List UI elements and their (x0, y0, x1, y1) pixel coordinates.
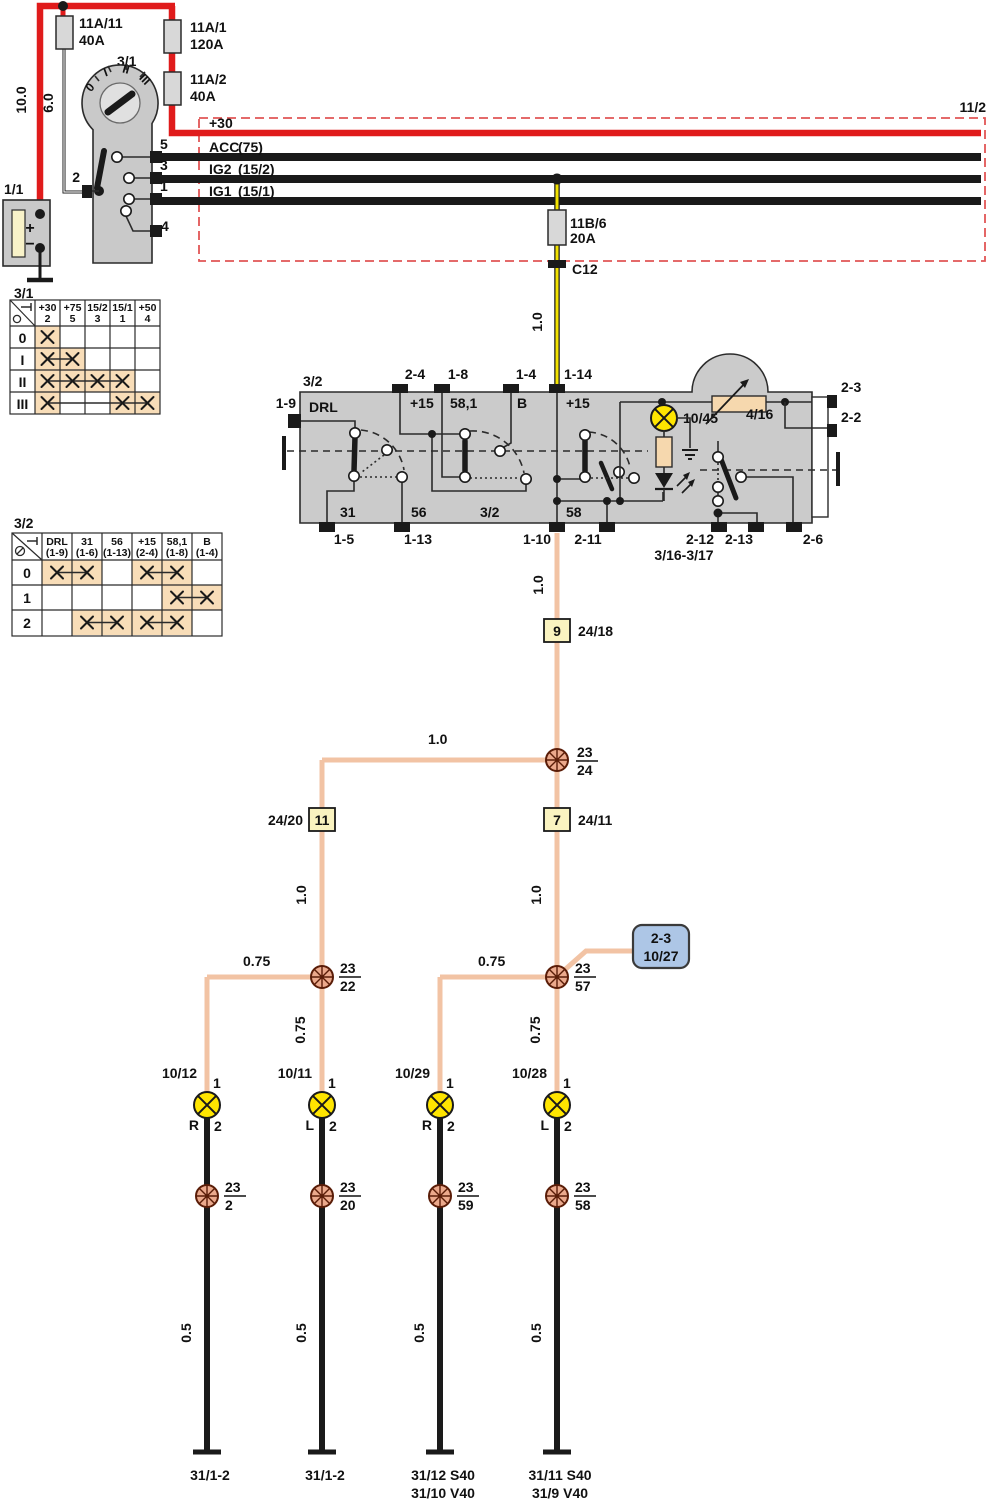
splice-label-bottom: 24 (577, 762, 593, 778)
fuse-name: 11A/2 (190, 71, 227, 87)
table-title: 3/1 (14, 285, 34, 301)
minus-sign: − (25, 236, 34, 253)
lamp-10-11: 10/11 1 L 2 (278, 1065, 337, 1134)
splice-label-top: 23 (458, 1179, 474, 1195)
row-label: I (21, 352, 25, 368)
splice-23-2: 23 2 (196, 1179, 246, 1213)
fuse-11a11: 11A/11 40A (56, 15, 123, 49)
fuse-box-ref: 11/2 (960, 99, 987, 115)
ground-ref: 31/1-2 (305, 1467, 345, 1483)
ground-ref: 31/10 V40 (411, 1485, 475, 1500)
connector-c12 (548, 260, 566, 268)
wire-size-label: 1.0 (528, 885, 544, 905)
splice-23-22: 23 22 (311, 960, 361, 994)
wire-size-label: 1.0 (530, 575, 546, 595)
wire-size-label: 10.0 (13, 86, 29, 113)
terminal-label: 3/2 (480, 504, 500, 520)
col-pin: 2 (45, 313, 51, 325)
pin-4-label: 4 (161, 218, 169, 234)
wiring-diagram-page: 11/2 10.0 6.0 11A/11 40A 11A/1 120A 11A/… (0, 0, 989, 1500)
ground-ref: 31/9 V40 (532, 1485, 588, 1500)
pin-1-10 (549, 522, 565, 532)
ignition-switch-table: 3/1 +30 +75 15/2 15/1 +50 2 5 3 1 4 0 I … (10, 285, 160, 414)
splice-label-top: 23 (575, 1179, 591, 1195)
pin-5-label: 5 (160, 136, 168, 152)
ground-ref: 31/1-2 (190, 1467, 230, 1483)
lamp-feed-wires: 1.0 1.0 1.0 1.0 0.75 0.75 0.75 0.75 9 24… (207, 533, 689, 1092)
splice-label-bottom: 59 (458, 1197, 474, 1213)
pin-label: 1-4 (516, 366, 536, 382)
ignition-switch: 3/1 0 I II III 2 5 3 1 4 (72, 53, 169, 263)
col-pin: (1-9) (46, 547, 68, 559)
splice-label-top: 23 (340, 1179, 356, 1195)
table-title: 3/2 (14, 515, 34, 531)
wiring-diagram: 11/2 10.0 6.0 11A/11 40A 11A/1 120A 11A/… (0, 0, 989, 1500)
col-pin: (1-13) (103, 547, 131, 559)
fuse-rating: 120A (190, 36, 223, 52)
col-pin: (2-4) (136, 547, 158, 559)
splice-label-top: 23 (577, 744, 593, 760)
wire-size-label: 0.5 (528, 1323, 544, 1343)
fuse-11b6 (548, 210, 566, 245)
contact-icon (21, 303, 31, 311)
terminal-label: +15 (410, 395, 434, 411)
connector-ref: 24/18 (578, 623, 613, 639)
pin-2-3 (827, 395, 837, 408)
lamp-side: R (189, 1117, 199, 1133)
splice-label-bottom: 57 (575, 978, 591, 994)
row-label: 1 (23, 590, 31, 606)
connector-pin: 9 (553, 623, 561, 639)
wire-size-label: 0.75 (527, 1016, 543, 1043)
wire-size-label: 0.5 (411, 1323, 427, 1343)
fuse-11a1: 11A/1 120A (164, 19, 227, 53)
connector-24-20: 11 24/20 (268, 808, 335, 831)
terminal-label: 31 (340, 504, 356, 520)
lamp-id: 10/29 (395, 1065, 430, 1081)
wire-size-label: 0.75 (292, 1016, 308, 1043)
rheostat-ref: 4/16 (746, 406, 773, 422)
pin-2-2 (827, 424, 837, 437)
pin-1-8 (434, 384, 450, 393)
connector-ref: 24/11 (578, 812, 612, 828)
connector-24-11: 7 24/11 (544, 808, 612, 831)
remote-id: 10/27 (643, 948, 678, 964)
col-pin: 5 (70, 313, 76, 325)
ground-ref: 31/11 S40 (528, 1467, 591, 1483)
pin-label: 2-13 (725, 531, 753, 547)
pin-label: 1-14 (564, 366, 592, 382)
lamp-side: L (305, 1117, 314, 1133)
pin-label: 1-13 (404, 531, 432, 547)
wire-size-label: 0.75 (243, 953, 270, 969)
pin-1-4 (503, 384, 519, 393)
junction-dot (552, 174, 563, 185)
pin-2 (82, 185, 92, 198)
splice-23-24: 23 24 (546, 744, 598, 778)
fuse-11a2: 11A/2 40A (164, 71, 227, 105)
pin-label: 1-5 (334, 531, 354, 547)
col-pin: (1-4) (196, 547, 218, 559)
lamp-10-29: 10/29 1 R 2 (395, 1065, 455, 1134)
col-pin: 4 (145, 313, 151, 325)
wire-size-label: 1.0 (293, 885, 309, 905)
fuse-rating: 40A (190, 88, 216, 104)
splice-23-58: 23 58 (546, 1179, 596, 1213)
lamp-pin2: 2 (329, 1118, 337, 1134)
pin-label: 2-2 (841, 409, 861, 425)
ig1-alt-label: (15/1) (238, 183, 275, 199)
fuse-name: 11A/1 (190, 19, 227, 35)
remote-pin: 2-3 (651, 930, 671, 946)
connector-pin: 11 (315, 812, 330, 828)
splice-label-bottom: 22 (340, 978, 356, 994)
pin-1-14 (549, 384, 565, 393)
contact-icon (27, 537, 37, 545)
terminal-label: +15 (566, 395, 590, 411)
pin-label: 2-11 (574, 531, 601, 547)
battery-cell (12, 210, 25, 257)
col-pin: (1-8) (166, 547, 188, 559)
battery: 1/1 + − (3, 181, 53, 280)
ig1-label: IG1 (209, 183, 232, 199)
terminal-label: 58,1 (450, 395, 477, 411)
col-pin: (1-6) (76, 547, 98, 559)
terminal-label: B (517, 395, 527, 411)
row-label: II (19, 374, 27, 390)
wire-size-label: 0.75 (478, 953, 505, 969)
lamp-pin1: 1 (446, 1075, 454, 1091)
splice-label-top: 23 (340, 960, 356, 976)
plus30-label: +30 (209, 115, 233, 131)
connector-24-18: 9 24/18 (544, 619, 613, 642)
pin-label: 2-4 (405, 366, 425, 382)
module-id: 3/2 (303, 373, 323, 389)
row-label: 0 (19, 330, 27, 346)
pin-1-9 (288, 414, 301, 428)
illumination-lamp (651, 405, 677, 431)
acc-label: ACC (209, 139, 239, 155)
pin-2-6 (786, 522, 802, 532)
row-label: III (17, 396, 29, 412)
battery-plus-terminal (35, 209, 45, 219)
pin-2-4 (392, 384, 408, 393)
terminal-label: 58 (566, 504, 582, 520)
connector-ref: 24/20 (268, 812, 303, 828)
splice-label-top: 23 (575, 960, 591, 976)
lamp-pin2: 2 (214, 1118, 222, 1134)
acc-alt-label: (75) (238, 139, 263, 155)
fuse-name: 11A/11 (79, 15, 123, 31)
lamp-10-12: 10/12 1 R 2 (162, 1065, 222, 1134)
col-pin: 3 (95, 313, 101, 325)
splice-label-bottom: 58 (575, 1197, 591, 1213)
ground-wires: 23 2 23 20 23 59 23 58 0.5 0.5 0.5 0.5 3… (178, 1118, 596, 1500)
splice-23-59: 23 59 (429, 1179, 479, 1213)
splice-label-bottom: 2 (225, 1197, 233, 1213)
pin-label: 1-9 (276, 395, 296, 411)
lamp-id: 10/12 (162, 1065, 197, 1081)
remote-unit-10-27: 2-3 10/27 (633, 925, 689, 968)
lamp-pin1: 1 (563, 1075, 571, 1091)
col-pin: 1 (120, 313, 126, 325)
pin-label: 1-10 (523, 531, 551, 547)
wire-size-label: 1.0 (428, 731, 448, 747)
pin-1-5 (319, 522, 335, 532)
splice-label-bottom: 20 (340, 1197, 356, 1213)
splice-label-top: 23 (225, 1179, 241, 1195)
lamp-side: L (540, 1117, 549, 1133)
wire-size-label: 0.5 (178, 1323, 194, 1343)
ig2-alt-label: (15/2) (238, 161, 275, 177)
plus-sign: + (25, 220, 34, 237)
ig2-branch: 11B/6 20A C12 1.0 (529, 174, 607, 386)
fuse-name: 11B/6 (570, 215, 607, 231)
lamp-id: 10/28 (512, 1065, 547, 1081)
battery-id: 1/1 (4, 181, 24, 197)
pin-label: 2-6 (803, 531, 823, 547)
c12-label: C12 (572, 261, 598, 277)
lamp-pin1: 1 (328, 1075, 336, 1091)
lamp-pin2: 2 (564, 1118, 572, 1134)
wire-size-label: 6.0 (40, 93, 56, 113)
light-switch-module: 3/2 (276, 354, 862, 563)
lamp-id: 10/11 (278, 1065, 312, 1081)
pin-1 (150, 193, 162, 205)
connector-pin: 7 (553, 812, 561, 828)
wire-size-label: 0.5 (293, 1323, 309, 1343)
lamp-pin2: 2 (447, 1118, 455, 1134)
fuse-rating: 20A (570, 230, 596, 246)
wire-size-label: 1.0 (529, 312, 545, 332)
pin-label: 2-3 (841, 379, 861, 395)
light-switch-table: 3/2 DRL 31 56 +15 58,1 B (1-9) (1-6) (1-… (12, 515, 222, 636)
fuse-rating: 40A (79, 32, 105, 48)
ig2-label: IG2 (209, 161, 232, 177)
resistor (656, 437, 672, 467)
bus-lines: +30 ACC (75) IG2 (15/2) IG1 (15/1) (162, 115, 981, 201)
pin-label: 1-8 (448, 366, 468, 382)
row-label: 0 (23, 565, 31, 581)
lamp-pin1: 1 (213, 1075, 221, 1091)
junction-dot (58, 1, 68, 11)
lamp-side: R (422, 1117, 432, 1133)
pin-label: 2-12 (686, 531, 714, 547)
parking-lamps: 10/12 1 R 2 10/11 1 L 2 10/29 1 R 2 10/2… (162, 1065, 572, 1134)
lamp-10-28: 10/28 1 L 2 (512, 1065, 572, 1134)
splice-23-20: 23 20 (311, 1179, 361, 1213)
terminal-label: 56 (411, 504, 427, 520)
row-label: 2 (23, 615, 31, 631)
ground-ref: 3/16-3/17 (654, 547, 713, 563)
terminal-label: DRL (309, 399, 338, 415)
ground-ref: 31/12 S40 (411, 1467, 475, 1483)
pin-2-label: 2 (72, 169, 80, 185)
key-icon (13, 315, 20, 322)
